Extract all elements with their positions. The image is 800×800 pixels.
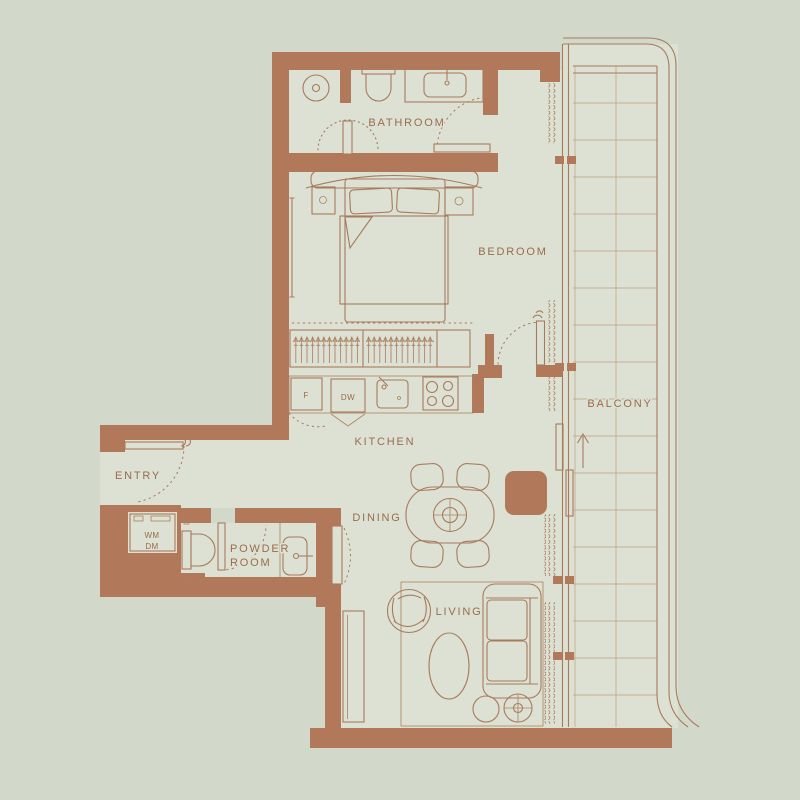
wall-bottom xyxy=(310,728,672,748)
wall-junction-horizontal xyxy=(478,365,502,378)
fridge-label: F xyxy=(303,391,308,400)
wall-entry xyxy=(100,425,289,440)
wall-powder-left-lower xyxy=(181,573,205,597)
wall-balcony-door-block xyxy=(536,365,562,377)
hangers-left xyxy=(293,334,360,366)
shower-door-leaf xyxy=(343,121,352,154)
wall-shower-stub xyxy=(340,70,351,103)
bathroom-label: BATHROOM xyxy=(368,117,445,129)
powder-room-label-2: ROOM xyxy=(230,557,271,569)
balcony-floor xyxy=(563,44,678,728)
wall-living-left xyxy=(325,597,341,728)
bathroom-door-leaf xyxy=(434,144,490,152)
balcony-door-leaf xyxy=(537,321,545,365)
powder-room-label-1: POWDER xyxy=(230,543,290,555)
wall-powder-bottom xyxy=(203,577,331,597)
structural-column xyxy=(505,471,547,515)
side-table-round-icon xyxy=(504,694,532,722)
washer-label: WM xyxy=(144,531,159,540)
balcony-label: BALCONY xyxy=(587,398,652,410)
dining-centerpiece-icon xyxy=(433,498,467,532)
powder-door-leaf xyxy=(218,523,225,570)
hangers-right xyxy=(366,334,434,366)
floor-plan: BALCONY xyxy=(0,0,800,800)
living-label: LIVING xyxy=(436,606,483,618)
wall-top xyxy=(272,52,560,70)
dishwasher-label: DW xyxy=(341,393,355,402)
wall-kitchen-stub xyxy=(472,374,484,413)
entry-label: ENTRY xyxy=(115,470,161,482)
wall-entry-stub xyxy=(100,425,125,452)
wall-top-right xyxy=(540,52,560,82)
wall-bathroom-east xyxy=(483,70,498,115)
floor-plan-canvas: BALCONY xyxy=(0,0,800,800)
dining-label: DINING xyxy=(352,512,401,524)
kitchen-label: KITCHEN xyxy=(355,436,416,448)
wall-junction-vertical xyxy=(485,334,494,366)
wall-left xyxy=(272,52,289,440)
bedroom-label: BEDROOM xyxy=(478,246,547,258)
wall-bathroom-divider xyxy=(289,153,498,172)
hall-door-leaf xyxy=(332,526,342,584)
wall-powder-top-left xyxy=(181,508,211,523)
entry-door-leaf xyxy=(125,442,183,449)
dryer-label: DM xyxy=(145,542,158,551)
